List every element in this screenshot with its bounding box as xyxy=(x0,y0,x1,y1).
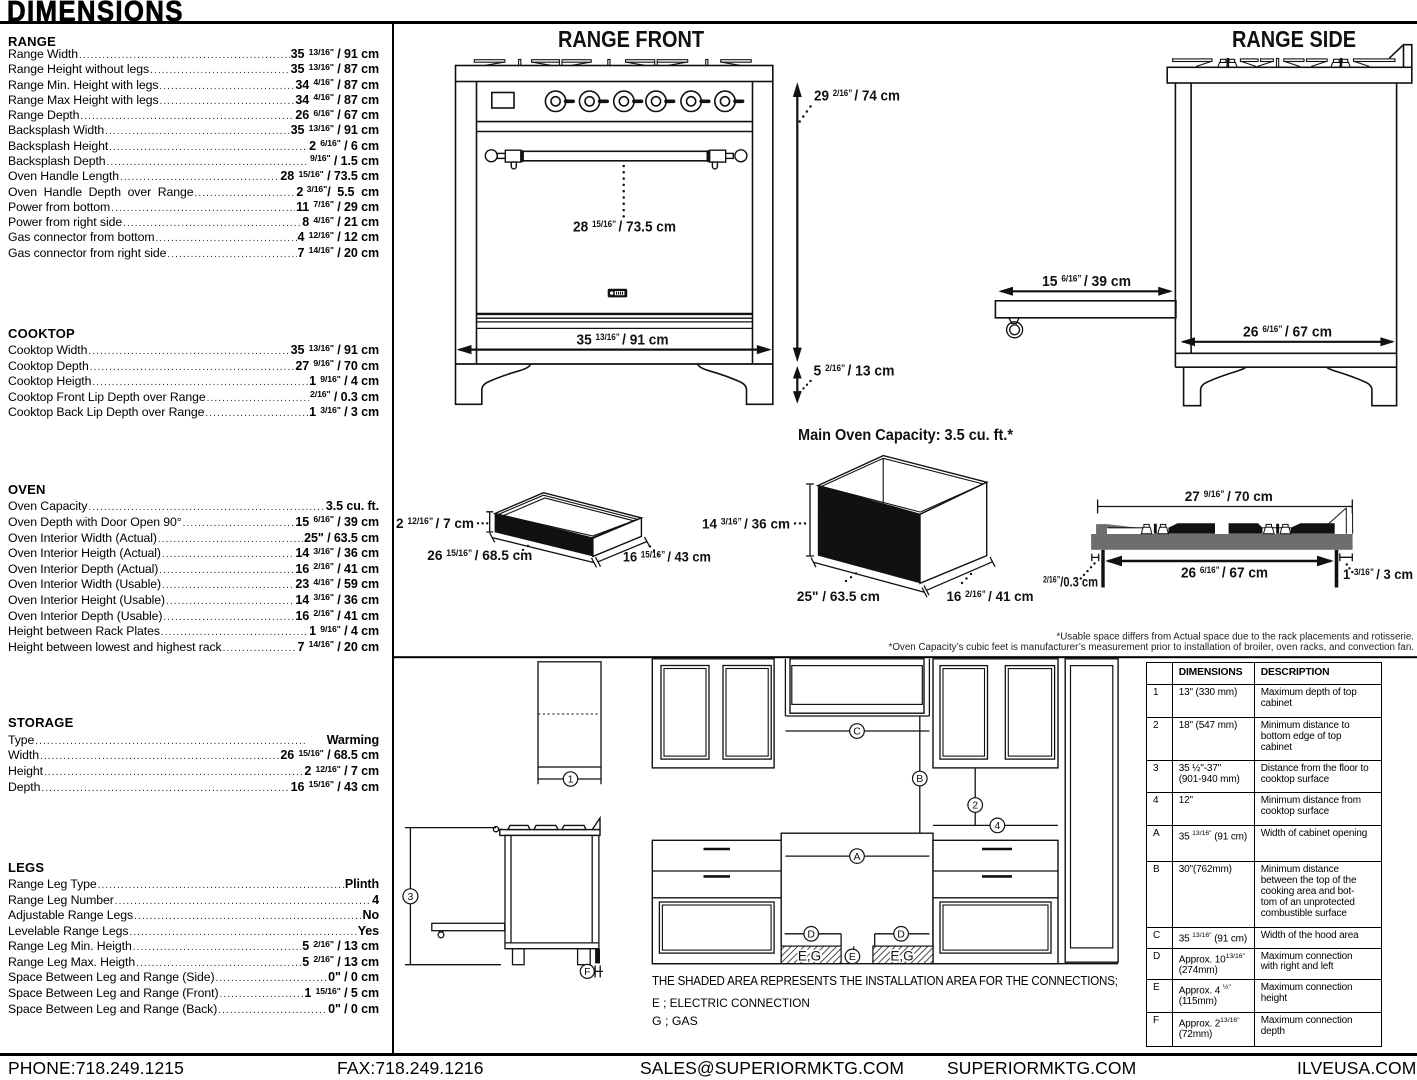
svg-text:26 15/16” / 68.5 cm: 26 15/16” / 68.5 cm xyxy=(427,548,532,564)
svg-text:1 3/16” / 3 cm: 1 3/16” / 3 cm xyxy=(1343,567,1413,583)
svg-text:4: 4 xyxy=(994,820,1000,832)
svg-text:35 13/16” / 91 cm: 35 13/16” / 91 cm xyxy=(577,332,669,349)
svg-text:5 2/16” / 13 cm: 5 2/16” / 13 cm xyxy=(814,363,895,380)
svg-text:*Usable space differs from Act: *Usable space differs from Actual space … xyxy=(1056,632,1414,643)
svg-text:1: 1 xyxy=(568,774,574,786)
svg-text:28 15/16” / 73.5 cm: 28 15/16” / 73.5 cm xyxy=(573,219,676,236)
svg-text:14 3/16” / 36 cm: 14 3/16” / 36 cm xyxy=(702,516,790,532)
svg-text:D: D xyxy=(897,929,905,941)
svg-text:B: B xyxy=(916,773,923,785)
svg-text:26 6/16” / 67 cm: 26 6/16” / 67 cm xyxy=(1181,565,1268,582)
svg-text:D: D xyxy=(807,929,815,941)
svg-text:3: 3 xyxy=(407,891,413,903)
svg-text:E: E xyxy=(849,951,856,963)
svg-text:2/16”/0.3 cm: 2/16”/0.3 cm xyxy=(1043,574,1098,590)
svg-text:RANGE SIDE: RANGE SIDE xyxy=(1232,26,1356,52)
svg-text:29 2/16” / 74 cm: 29 2/16” / 74 cm xyxy=(814,88,900,105)
svg-text:25" / 63.5 cm: 25" / 63.5 cm xyxy=(797,589,880,605)
svg-text:16 2/16” / 41 cm: 16 2/16” / 41 cm xyxy=(947,589,1034,605)
svg-text:27 9/16” / 70 cm: 27 9/16” / 70 cm xyxy=(1185,489,1273,505)
svg-text:A: A xyxy=(853,851,860,863)
svg-text:E,G: E,G xyxy=(890,948,913,963)
svg-text:F: F xyxy=(584,966,590,978)
svg-text:26 6/16” / 67 cm: 26 6/16” / 67 cm xyxy=(1243,323,1332,340)
svg-text:2: 2 xyxy=(972,800,978,812)
svg-text:16 15/16” / 43 cm: 16 15/16” / 43 cm xyxy=(623,549,711,565)
svg-text:C: C xyxy=(853,726,861,738)
svg-text:*Oven Capacity’s cubic feet is: *Oven Capacity’s cubic feet is manufactu… xyxy=(889,642,1415,653)
svg-text:RANGE FRONT: RANGE FRONT xyxy=(558,26,705,52)
svg-text:E,G: E,G xyxy=(798,948,821,963)
svg-text:2 12/16” / 7 cm: 2 12/16” / 7 cm xyxy=(396,516,474,532)
svg-text:Main Oven Capacity: 3.5 cu. ft: Main Oven Capacity: 3.5 cu. ft.* xyxy=(798,427,1013,444)
svg-text:15 6/16” / 39 cm: 15 6/16” / 39 cm xyxy=(1042,273,1131,290)
